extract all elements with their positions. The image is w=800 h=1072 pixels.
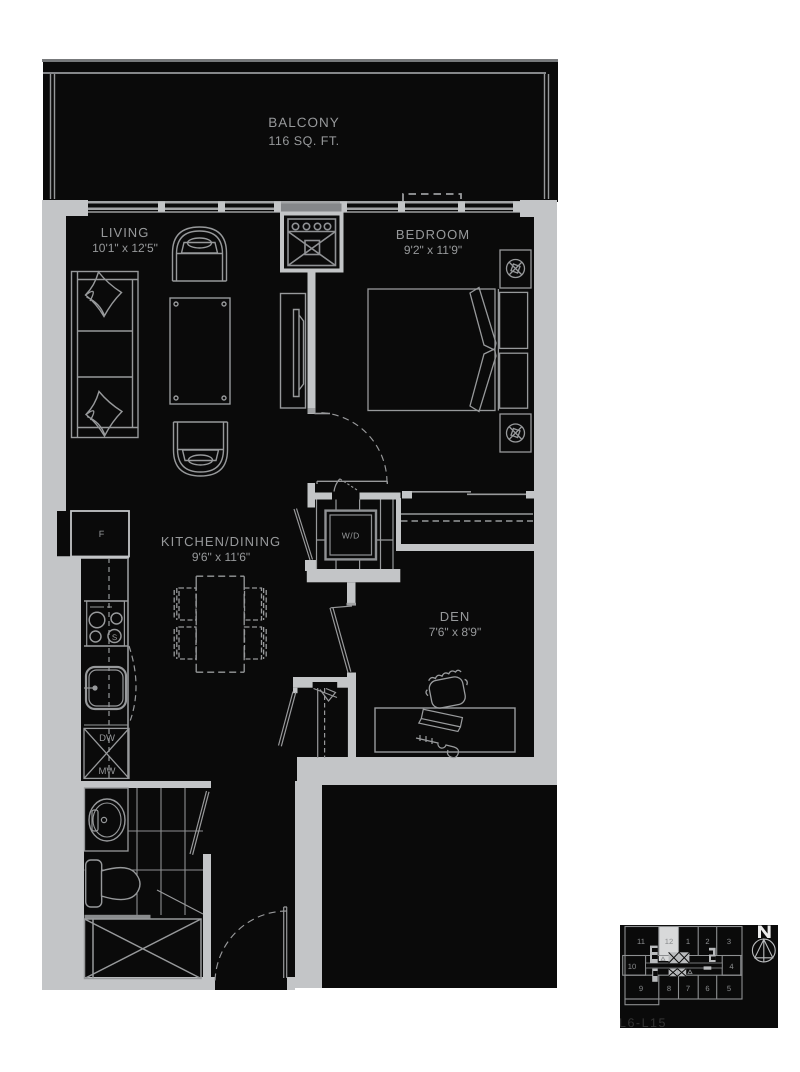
svg-text:W/D: W/D bbox=[342, 531, 360, 541]
svg-text:116 SQ. FT.: 116 SQ. FT. bbox=[268, 134, 339, 148]
svg-text:10'1" x 12'5": 10'1" x 12'5" bbox=[92, 241, 158, 255]
svg-text:9'2" x 11'9": 9'2" x 11'9" bbox=[404, 243, 462, 257]
svg-text:11: 11 bbox=[637, 937, 645, 946]
svg-text:6: 6 bbox=[705, 984, 709, 993]
svg-text:F: F bbox=[99, 529, 105, 539]
svg-text:3: 3 bbox=[727, 937, 731, 946]
svg-text:12: 12 bbox=[665, 937, 673, 946]
svg-text:DW: DW bbox=[99, 733, 115, 744]
svg-text:1: 1 bbox=[686, 937, 690, 946]
svg-text:8: 8 bbox=[667, 984, 671, 993]
svg-text:BEDROOM: BEDROOM bbox=[396, 227, 470, 242]
svg-text:S: S bbox=[112, 633, 117, 642]
svg-text:7'6" x 8'9": 7'6" x 8'9" bbox=[429, 625, 481, 639]
svg-text:LIVING: LIVING bbox=[101, 225, 150, 240]
svg-text:9'6" x 11'6": 9'6" x 11'6" bbox=[192, 550, 250, 564]
svg-text:MW: MW bbox=[99, 766, 116, 777]
svg-text:BALCONY: BALCONY bbox=[268, 115, 340, 130]
svg-text:5: 5 bbox=[727, 984, 731, 993]
svg-text:4: 4 bbox=[729, 962, 733, 971]
svg-text:2: 2 bbox=[705, 937, 709, 946]
svg-text:7: 7 bbox=[686, 984, 690, 993]
svg-text:KITCHEN/DINING: KITCHEN/DINING bbox=[161, 534, 281, 549]
svg-text:10: 10 bbox=[628, 962, 636, 971]
svg-text:L6-L15: L6-L15 bbox=[619, 1016, 667, 1030]
svg-text:DEN: DEN bbox=[440, 609, 470, 624]
svg-text:9: 9 bbox=[639, 984, 643, 993]
